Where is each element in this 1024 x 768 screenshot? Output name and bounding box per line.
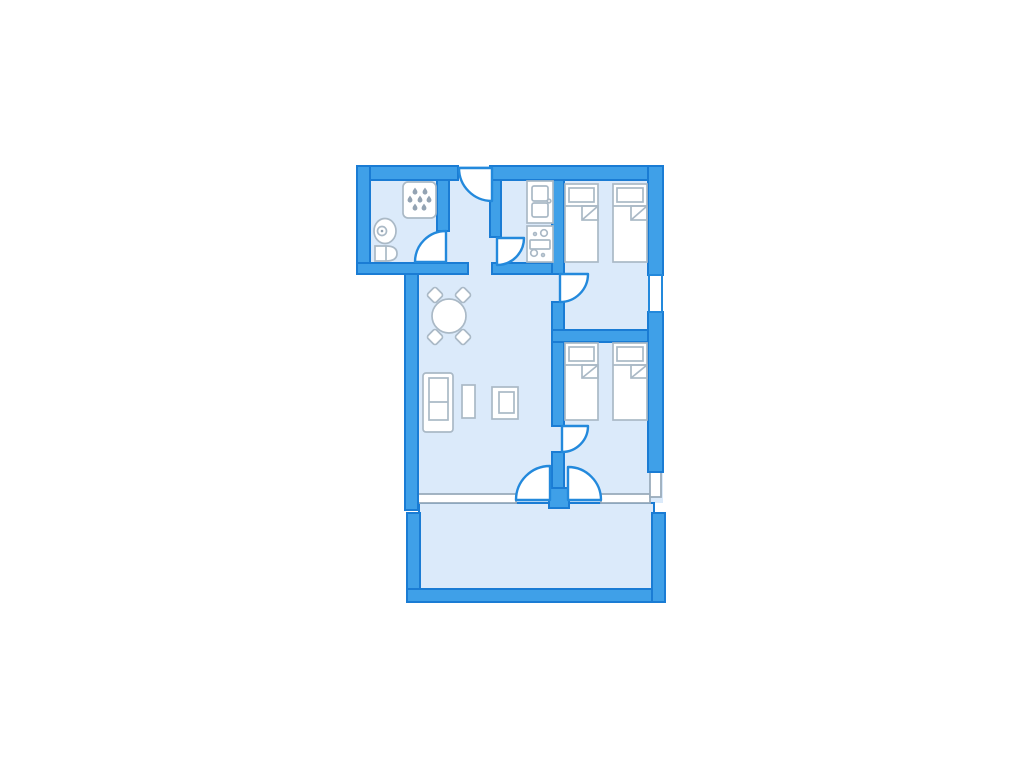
bed-icon <box>565 184 598 262</box>
window-bottom-bedroom-2 <box>601 494 650 503</box>
page <box>0 0 1024 768</box>
wall-bedroom-2-left-upper <box>552 342 564 426</box>
bed-icon <box>613 184 647 262</box>
coffee-table-icon <box>462 385 475 418</box>
bed-icon <box>613 343 647 420</box>
balcony-floor <box>419 503 654 590</box>
wall-right-upper <box>648 166 663 275</box>
bed-icon <box>565 343 598 420</box>
wall-living-left <box>405 274 418 510</box>
wall-bathroom-hall-divider <box>437 180 449 231</box>
floor-plan <box>0 0 1024 768</box>
wall-top-left-segment <box>357 166 458 180</box>
window-right-bedroom-1 <box>649 275 662 312</box>
balcony-wall-right <box>652 513 665 602</box>
balcony-wall-bottom <box>407 589 665 602</box>
wall-center-post <box>549 488 569 508</box>
wall-bathroom-left <box>357 166 370 274</box>
stove-unit-icon <box>527 226 553 262</box>
dining-table-icon <box>432 299 466 333</box>
wall-bedroom-1-left-lower <box>552 302 564 330</box>
wall-top-right-segment <box>490 166 663 180</box>
window-bottom-living-room <box>418 494 516 503</box>
wall-right-lower <box>648 312 663 472</box>
wall-bedrooms-divider <box>552 330 663 342</box>
wall-bathroom-bottom <box>357 263 468 274</box>
washbasin-dot-icon <box>381 230 384 233</box>
wall-bedroom-2-left-lower <box>552 452 564 488</box>
window-right-bedroom-2-corner <box>650 472 661 497</box>
kitchen-fixtures <box>527 181 553 262</box>
